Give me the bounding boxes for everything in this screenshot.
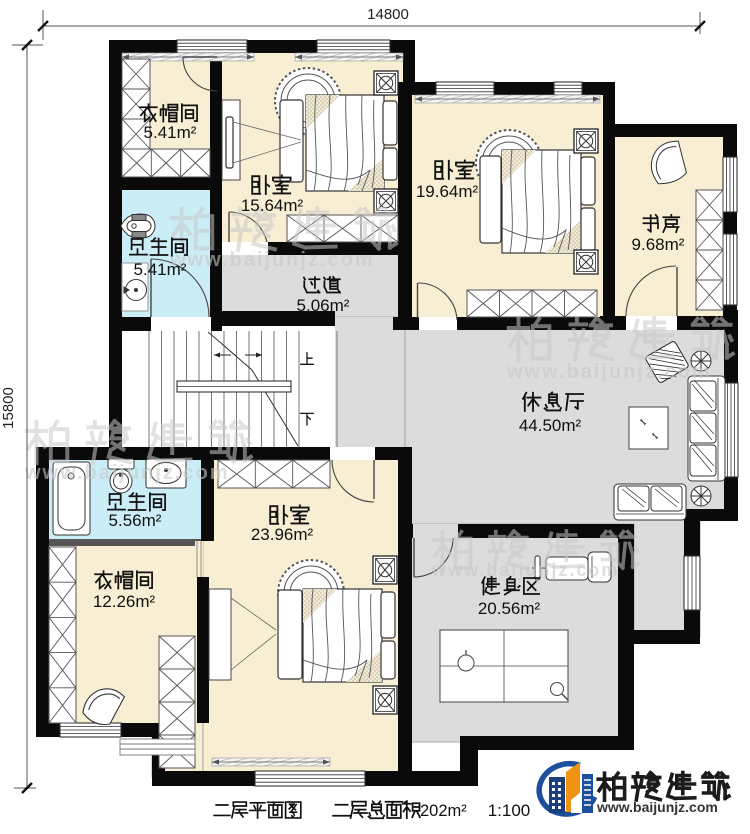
svg-text:12.26m²: 12.26m²: [93, 592, 156, 611]
svg-text:14800: 14800: [367, 6, 409, 23]
svg-text:15800: 15800: [0, 387, 17, 429]
svg-text:5.56m²: 5.56m²: [109, 511, 162, 530]
svg-text:5.41m²: 5.41m²: [144, 123, 197, 142]
svg-text:www.baijunjz.com: www.baijunjz.com: [506, 361, 712, 383]
svg-text:44.50m²: 44.50m²: [519, 416, 582, 435]
svg-text:9.68m²: 9.68m²: [632, 235, 685, 254]
svg-text:www.baijunjz.com: www.baijunjz.com: [431, 560, 619, 580]
svg-text:19.64m²: 19.64m²: [416, 182, 479, 201]
svg-text:www.baijunjz.com: www.baijunjz.com: [24, 462, 230, 484]
svg-text:1:100: 1:100: [488, 801, 531, 820]
svg-text:202m²: 202m²: [420, 802, 467, 820]
svg-text:www.baijunjz.com: www.baijunjz.com: [596, 799, 718, 815]
svg-text:20.56m²: 20.56m²: [478, 599, 541, 618]
svg-text:15.64m²: 15.64m²: [241, 196, 304, 215]
svg-text:5.41m²: 5.41m²: [134, 260, 187, 279]
svg-text:www.baijunjz.com: www.baijunjz.com: [169, 249, 375, 271]
svg-text:5.06m²: 5.06m²: [297, 296, 350, 315]
svg-text:23.96m²: 23.96m²: [251, 525, 314, 544]
